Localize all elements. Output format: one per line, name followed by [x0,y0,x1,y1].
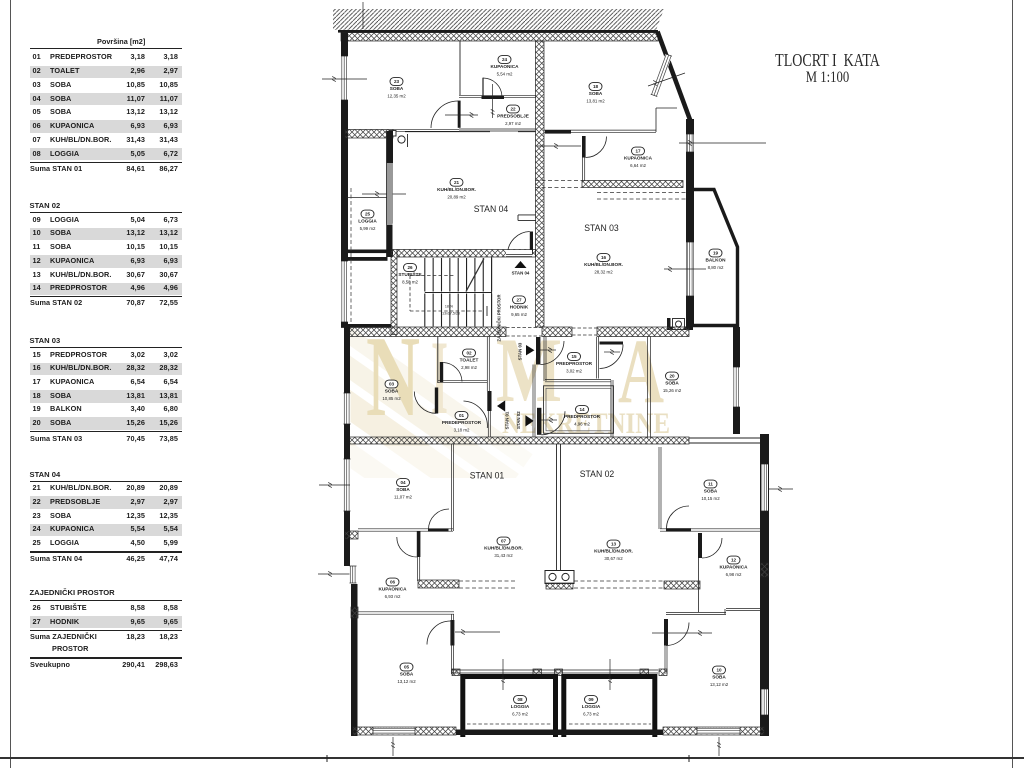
svg-text:19: 19 [713,251,719,256]
svg-text:25: 25 [365,212,371,217]
svg-text:05: 05 [404,665,410,670]
svg-text:16: 16 [601,255,607,260]
svg-text:STAN 02: STAN 02 [580,469,615,479]
svg-text:STAN 04: STAN 04 [474,204,509,214]
svg-text:6,64 m2: 6,64 m2 [630,163,646,168]
svg-text:15: 15 [571,354,577,359]
svg-text:17: 17 [635,149,641,154]
svg-text:8,58 m2: 8,58 m2 [402,280,418,285]
svg-text:KUPAONICA: KUPAONICA [490,64,519,69]
svg-text:26: 26 [407,265,413,270]
svg-text:KUH/BL/DN.BOR.: KUH/BL/DN.BOR. [584,262,623,267]
svg-text:TOALET: TOALET [460,358,479,363]
svg-text:18 %: 18 % [445,305,454,309]
svg-text:LOGGIA: LOGGIA [511,704,530,709]
svg-text:STAN 01: STAN 01 [470,471,505,481]
svg-text:12,35 m2: 12,35 m2 [387,94,406,99]
svg-text:SOBA: SOBA [665,381,679,386]
svg-text:SOBA: SOBA [704,489,718,494]
svg-text:04: 04 [400,480,406,485]
svg-text:STAN 01: STAN 01 [505,411,510,429]
svg-text:5,54 m2: 5,54 m2 [497,72,513,77]
svg-text:12: 12 [731,558,737,563]
svg-text:SOBA: SOBA [385,389,399,394]
svg-text:20: 20 [669,374,675,379]
svg-text:SOBA: SOBA [400,672,414,677]
svg-text:KUPAONICA: KUPAONICA [624,156,653,161]
svg-text:PREDEPROSTOR: PREDEPROSTOR [442,420,482,425]
svg-text:13: 13 [611,542,617,547]
svg-text:SOBA: SOBA [396,487,410,492]
svg-text:BALKON: BALKON [705,258,726,263]
svg-text:07: 07 [501,539,507,544]
svg-text:14: 14 [579,407,585,412]
svg-text:13,12 m2: 13,12 m2 [710,682,729,687]
svg-text:LOGGIA: LOGGIA [582,704,601,709]
svg-text:03: 03 [389,382,395,387]
svg-text:22: 22 [510,107,516,112]
svg-text:06: 06 [390,580,396,585]
svg-text:30,67 m2: 30,67 m2 [604,556,623,561]
svg-text:11: 11 [708,482,713,487]
svg-text:HODNIK: HODNIK [510,304,529,309]
svg-text:21: 21 [454,180,460,185]
svg-text:8,80 m2: 8,80 m2 [708,265,724,270]
svg-text:KUPAONICA: KUPAONICA [378,587,407,592]
svg-text:01: 01 [459,413,465,418]
svg-text:KUH/BL/DN.BOR.: KUH/BL/DN.BOR. [484,546,523,551]
svg-text:13x17,5/28: 13x17,5/28 [442,312,460,316]
svg-text:SOBA: SOBA [712,675,726,680]
svg-text:13,81 m2: 13,81 m2 [586,99,605,104]
svg-text:3,18 m2: 3,18 m2 [454,428,470,433]
svg-text:08: 08 [517,697,523,702]
svg-text:02: 02 [466,351,472,356]
svg-text:6,93 m2: 6,93 m2 [385,594,401,599]
svg-text:LOGGIA: LOGGIA [358,219,377,224]
svg-text:23: 23 [394,79,400,84]
svg-text:4,96 m2: 4,96 m2 [574,422,590,427]
svg-text:KUH/BL/DN.BOR.: KUH/BL/DN.BOR. [437,187,476,192]
svg-text:27: 27 [516,298,522,303]
svg-text:10: 10 [716,668,722,673]
svg-text:6,98 m2: 6,98 m2 [726,572,742,577]
svg-text:10,85 m2: 10,85 m2 [382,396,401,401]
svg-text:24: 24 [502,57,508,62]
svg-text:11,07 m2: 11,07 m2 [394,495,413,500]
svg-text:STUBIŠTE: STUBIŠTE [398,270,421,277]
svg-text:STAN 02: STAN 02 [516,411,521,429]
svg-text:KUPAONICA: KUPAONICA [719,565,748,570]
svg-text:28,32 m2: 28,32 m2 [594,270,613,275]
svg-text:15,26 m2: 15,26 m2 [663,388,682,393]
svg-text:PREDPROSTOR: PREDPROSTOR [564,414,601,419]
svg-text:PREDPROSTOR: PREDPROSTOR [556,361,593,366]
svg-text:13,12 m2: 13,12 m2 [397,679,416,684]
svg-text:6,73 m2: 6,73 m2 [512,712,528,717]
svg-text:9,65 m2: 9,65 m2 [511,312,527,317]
svg-text:2,97 m2: 2,97 m2 [505,121,521,126]
svg-text:STAN 03: STAN 03 [584,223,619,233]
svg-text:6,73 m2: 6,73 m2 [583,712,599,717]
svg-text:10,15 m2: 10,15 m2 [701,496,720,501]
svg-text:3,02 m2: 3,02 m2 [566,369,582,374]
svg-text:5,99 m2: 5,99 m2 [360,226,376,231]
svg-text:18: 18 [593,84,599,89]
svg-text:PREDSOBLJE: PREDSOBLJE [497,114,529,119]
svg-text:SOBA: SOBA [390,86,404,91]
svg-text:31,43 m2: 31,43 m2 [494,553,513,558]
svg-text:STAN 03: STAN 03 [518,342,523,360]
svg-text:SOBA: SOBA [589,91,603,96]
svg-text:20,89 m2: 20,89 m2 [447,195,466,200]
svg-text:2,98 m2: 2,98 m2 [461,365,477,370]
svg-text:09: 09 [588,697,594,702]
svg-text:STAN 04: STAN 04 [512,271,530,276]
svg-text:KUH/BL/DN.BOR.: KUH/BL/DN.BOR. [594,549,633,554]
